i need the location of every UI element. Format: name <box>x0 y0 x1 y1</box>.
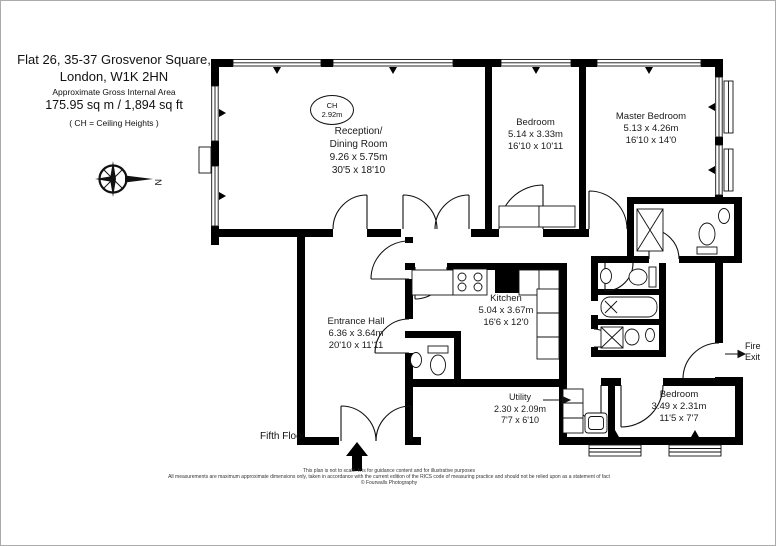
floorplan-page: N Flat 26, 35-37 Grosvenor Square, Londo… <box>0 0 776 546</box>
ceiling-height-note: ( CH = Ceiling Heights ) <box>7 118 221 129</box>
compass-icon: N <box>95 161 163 197</box>
room-name: Reception/ <box>296 125 421 138</box>
disclaimer-line-3: © Fourwalls Photography <box>89 480 689 486</box>
room-dims-imperial: 7'7 x 6'10 <box>475 415 565 427</box>
disclaimer: This plan is not to scale. It is for gui… <box>89 468 689 487</box>
ch-value: 2.92m <box>311 110 353 119</box>
area-label: Approximate Gross Internal Area <box>7 87 221 98</box>
address-line-1: Flat 26, 35-37 Grosvenor Square, <box>7 51 221 68</box>
title-block: Flat 26, 35-37 Grosvenor Square, London,… <box>7 51 221 129</box>
room-dims-metric: 5.14 x 3.33m <box>483 129 588 141</box>
fire-exit-arrow-icon <box>725 351 745 358</box>
room-dims-metric: 3.49 x 2.31m <box>629 401 729 413</box>
room-name: Kitchen <box>456 293 556 305</box>
room-name: Dining Room <box>296 138 421 151</box>
room-dims-imperial: 16'10 x 14'0 <box>593 135 709 147</box>
fire-exit-label: Fire Exit <box>745 341 775 363</box>
ch-label: CH <box>311 101 353 110</box>
room-dims-metric: 9.26 x 5.75m <box>296 151 421 164</box>
room-label-reception: Reception/ Dining Room 9.26 x 5.75m 30'5… <box>296 125 421 177</box>
entrance-arrow-icon <box>346 442 368 471</box>
room-name: Bedroom <box>483 117 588 129</box>
room-name: Entrance Hall <box>306 316 406 328</box>
room-name: Utility <box>475 392 565 404</box>
room-dims-imperial: 16'6 x 12'0 <box>456 317 556 329</box>
room-name: Master Bedroom <box>593 111 709 123</box>
room-dims-imperial: 16'10 x 10'11 <box>483 141 588 153</box>
room-dims-metric: 5.13 x 4.26m <box>593 123 709 135</box>
room-label-kitchen: Kitchen 5.04 x 3.67m 16'6 x 12'0 <box>456 293 556 329</box>
room-dims-imperial: 11'5 x 7'7 <box>629 413 729 425</box>
area-value: 175.95 sq m / 1,894 sq ft <box>7 98 221 113</box>
address-line-2: London, W1K 2HN <box>7 68 221 85</box>
room-label-utility: Utility 2.30 x 2.09m 7'7 x 6'10 <box>475 392 565 427</box>
room-label-bedroom: Bedroom 5.14 x 3.33m 16'10 x 10'11 <box>483 117 588 153</box>
floor-level-label: Fifth Floor <box>239 431 305 442</box>
room-dims-metric: 5.04 x 3.67m <box>456 305 556 317</box>
room-dims-imperial: 30'5 x 18'10 <box>296 164 421 177</box>
room-name: Bedroom <box>629 389 729 401</box>
room-dims-imperial: 20'10 x 11'11 <box>306 340 406 352</box>
room-label-bedroom-2: Bedroom 3.49 x 2.31m 11'5 x 7'7 <box>629 389 729 425</box>
room-label-master-bedroom: Master Bedroom 5.13 x 4.26m 16'10 x 14'0 <box>593 111 709 147</box>
ceiling-height-badge: CH 2.92m <box>310 95 354 125</box>
north-label: N <box>153 179 163 186</box>
room-label-entrance-hall: Entrance Hall 6.36 x 3.64m 20'10 x 11'11 <box>306 316 406 352</box>
room-dims-metric: 2.30 x 2.09m <box>475 404 565 416</box>
room-dims-metric: 6.36 x 3.64m <box>306 328 406 340</box>
